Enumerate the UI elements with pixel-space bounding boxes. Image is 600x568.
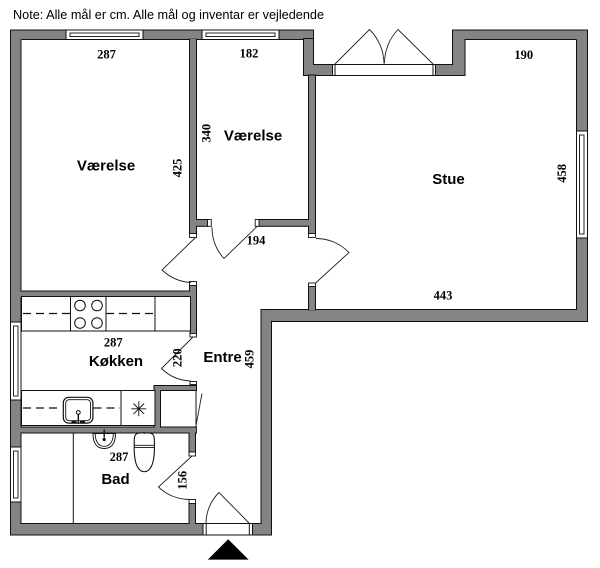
svg-text:156: 156: [176, 471, 190, 490]
svg-text:Entre: Entre: [203, 349, 241, 366]
svg-text:Note: Alle mål er cm. Alle mål: Note: Alle mål er cm. Alle mål og invent…: [13, 8, 324, 22]
svg-text:458: 458: [555, 164, 569, 183]
svg-text:287: 287: [97, 47, 116, 61]
svg-text:Stue: Stue: [432, 171, 465, 188]
svg-text:182: 182: [240, 47, 259, 61]
svg-text:459: 459: [243, 350, 257, 369]
svg-text:340: 340: [199, 124, 213, 143]
svg-text:Værelse: Værelse: [224, 127, 282, 144]
svg-text:220: 220: [171, 348, 185, 367]
svg-text:190: 190: [514, 48, 533, 62]
svg-text:287: 287: [110, 450, 129, 464]
svg-text:Værelse: Værelse: [77, 158, 135, 175]
svg-text:425: 425: [171, 159, 185, 178]
svg-text:443: 443: [434, 288, 453, 302]
svg-text:Bad: Bad: [101, 471, 129, 488]
svg-text:Køkken: Køkken: [89, 353, 143, 370]
svg-text:287: 287: [104, 336, 123, 350]
svg-text:194: 194: [247, 234, 267, 248]
